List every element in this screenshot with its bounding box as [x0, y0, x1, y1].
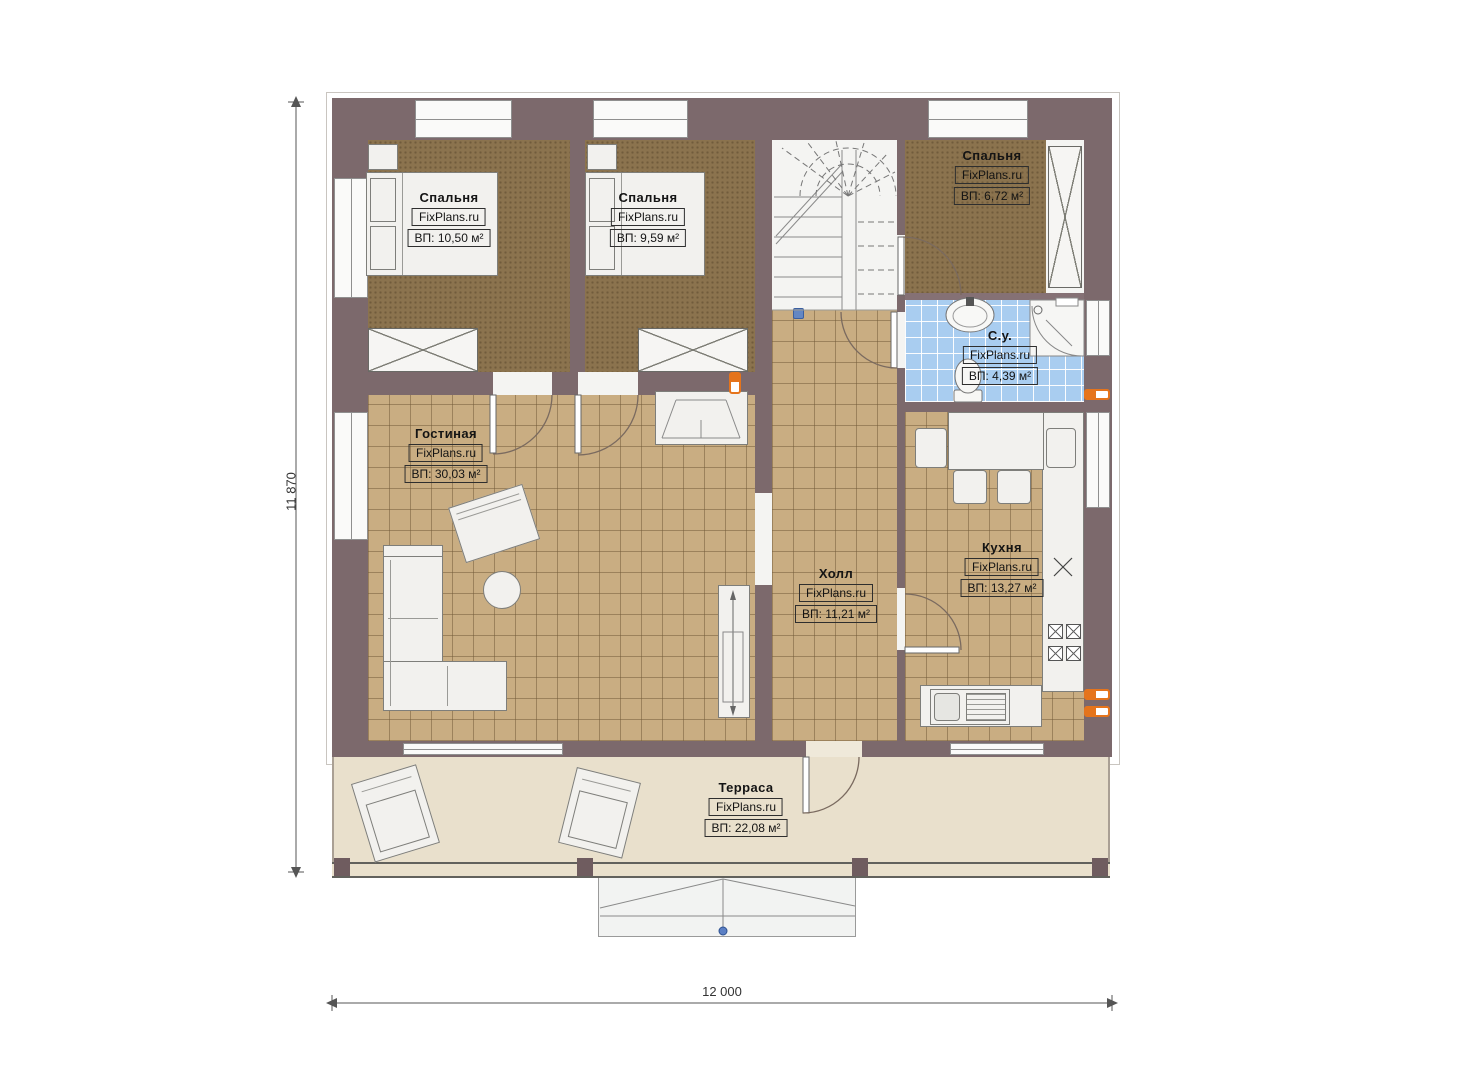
fireplace-icon	[655, 391, 748, 445]
bedroom1-wardrobe-icon	[368, 328, 478, 372]
wall-central-spine	[755, 140, 772, 741]
area-box: ВП: 4,39 м²	[962, 367, 1038, 385]
sliding-door-pocket	[718, 585, 750, 718]
terrace-railing	[332, 862, 1110, 878]
stove-burner-icon	[1048, 646, 1063, 661]
window-mullion	[594, 119, 687, 120]
bedroom2-nightstand-icon	[587, 144, 617, 170]
sofa-seam-line	[388, 618, 438, 619]
pillow-icon	[370, 178, 396, 222]
room-name: Спальня	[954, 148, 1030, 163]
pillow-icon	[370, 226, 396, 270]
radiator-icon	[1084, 389, 1110, 400]
sink-drainboard-icon	[966, 693, 1006, 721]
blanket-line	[402, 173, 403, 275]
sofa-chaise-icon	[383, 661, 507, 711]
wall-hall-kitchen	[897, 412, 905, 741]
area-box: ВП: 13,27 м²	[961, 579, 1044, 597]
bathroom-door-opening	[897, 312, 905, 368]
wall-bedroom1-bedroom2	[570, 140, 585, 372]
watermark-box: FixPlans.ru	[963, 346, 1037, 364]
entrance-steps	[598, 877, 856, 937]
room-name: С.у.	[962, 328, 1038, 343]
window-mullion	[351, 413, 352, 539]
terrace-post	[577, 858, 593, 876]
wall-bathroom-kitchen	[897, 402, 1084, 412]
dining-chair-icon	[997, 470, 1031, 504]
window-kitchen-right	[1086, 412, 1110, 508]
watermark-box: FixPlans.ru	[799, 584, 873, 602]
bathroom-label: С.у. FixPlans.ru ВП: 4,39 м²	[962, 328, 1038, 385]
bedroom1-nightstand-icon	[368, 144, 398, 170]
terrace-label: Терраса FixPlans.ru ВП: 22,08 м²	[705, 780, 788, 837]
room-name: Спальня	[610, 190, 686, 205]
kitchen-door-opening	[897, 588, 905, 650]
room-name: Спальня	[408, 190, 491, 205]
window-bedroom2-top	[593, 100, 688, 138]
dimension-width-label: 12 000	[682, 984, 762, 999]
window-bedroom1-left	[334, 178, 368, 298]
room-name: Терраса	[705, 780, 788, 795]
window-mullion	[1098, 301, 1099, 355]
dining-chair-icon	[1046, 428, 1076, 468]
stove-burner-icon	[1048, 624, 1063, 639]
window-mullion	[416, 119, 511, 120]
area-box: ВП: 11,21 м²	[795, 605, 877, 623]
window-mullion	[1098, 413, 1099, 507]
dimension-height-label: 11 870	[284, 462, 299, 522]
window-bathroom-right	[1086, 300, 1110, 356]
window-mullion	[929, 119, 1027, 120]
staircase-floor	[772, 140, 897, 310]
sofa-back-line	[390, 560, 391, 706]
watermark-box: FixPlans.ru	[611, 208, 685, 226]
coffee-table-icon	[483, 571, 521, 609]
dining-chair-icon	[915, 428, 947, 468]
wall-bedroom3-bathroom	[905, 293, 1084, 300]
window-bedroom1-top	[415, 100, 512, 138]
bedroom3-wardrobe-icon	[1048, 146, 1082, 288]
window-mullion	[351, 179, 352, 297]
living-hall-opening	[755, 493, 772, 585]
stove-burner-icon	[1066, 646, 1081, 661]
area-box: ВП: 6,72 м²	[954, 187, 1030, 205]
dining-chair-icon	[953, 470, 987, 504]
watermark-box: FixPlans.ru	[412, 208, 486, 226]
area-box: ВП: 22,08 м²	[705, 819, 788, 837]
window-living-left	[334, 412, 368, 540]
window-mullion	[951, 749, 1043, 750]
bedroom1-door-opening	[493, 372, 552, 395]
bedroom3-door-opening	[897, 235, 905, 295]
terrace-post	[334, 858, 350, 876]
room-name: Кухня	[961, 540, 1044, 555]
watermark-box: FixPlans.ru	[709, 798, 783, 816]
bedroom2-door-opening	[578, 372, 638, 395]
terrace-post	[852, 858, 868, 876]
bedroom3-label: Спальня FixPlans.ru ВП: 6,72 м²	[954, 148, 1030, 205]
area-box: ВП: 10,50 м²	[408, 229, 491, 247]
window-kitchen-bottom	[950, 743, 1044, 755]
watermark-box: FixPlans.ru	[409, 444, 483, 462]
watermark-box: FixPlans.ru	[955, 166, 1029, 184]
dining-table-icon	[948, 412, 1044, 470]
bedroom2-label: Спальня FixPlans.ru ВП: 9,59 м²	[610, 190, 686, 247]
terrace-post	[1092, 858, 1108, 876]
terrace-door-opening	[806, 741, 862, 757]
sofa-seam-line	[447, 666, 448, 706]
hall-label: Холл FixPlans.ru ВП: 11,21 м²	[795, 566, 877, 623]
kitchen-label: Кухня FixPlans.ru ВП: 13,27 м²	[961, 540, 1044, 597]
watermark-box: FixPlans.ru	[965, 558, 1039, 576]
stove-burner-icon	[1066, 624, 1081, 639]
radiator-icon	[1084, 706, 1110, 717]
area-box: ВП: 9,59 м²	[610, 229, 686, 247]
radiator-icon	[729, 372, 741, 394]
area-box: ВП: 30,03 м²	[405, 465, 488, 483]
sink-basin-icon	[934, 693, 960, 721]
living-room-label: Гостиная FixPlans.ru ВП: 30,03 м²	[405, 426, 488, 483]
level-marker-icon	[793, 308, 804, 319]
window-bedroom3-top	[928, 100, 1028, 138]
room-name: Гостиная	[405, 426, 488, 441]
window-living-bottom	[403, 743, 563, 755]
room-name: Холл	[795, 566, 877, 581]
window-mullion	[404, 749, 562, 750]
radiator-icon	[1084, 689, 1110, 700]
bedroom2-wardrobe-icon	[638, 328, 748, 372]
bedroom1-label: Спальня FixPlans.ru ВП: 10,50 м²	[408, 190, 491, 247]
floor-plan-canvas: Спальня FixPlans.ru ВП: 10,50 м² Спальня…	[0, 0, 1474, 1080]
hall-floor	[772, 310, 897, 741]
